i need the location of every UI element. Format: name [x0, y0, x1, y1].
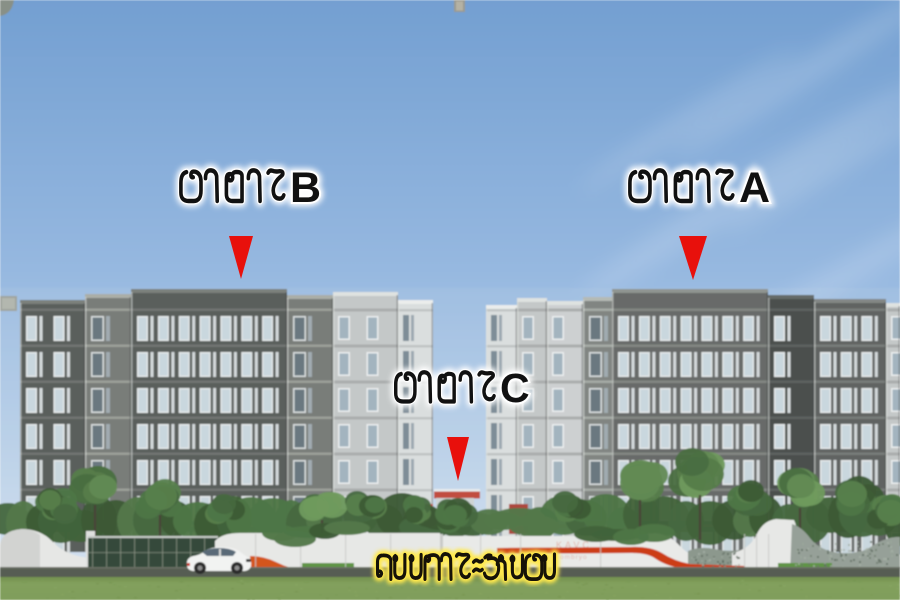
- svg-text:B: B: [290, 164, 321, 212]
- svg-text:A: A: [739, 164, 770, 212]
- svg-text:C: C: [500, 365, 530, 411]
